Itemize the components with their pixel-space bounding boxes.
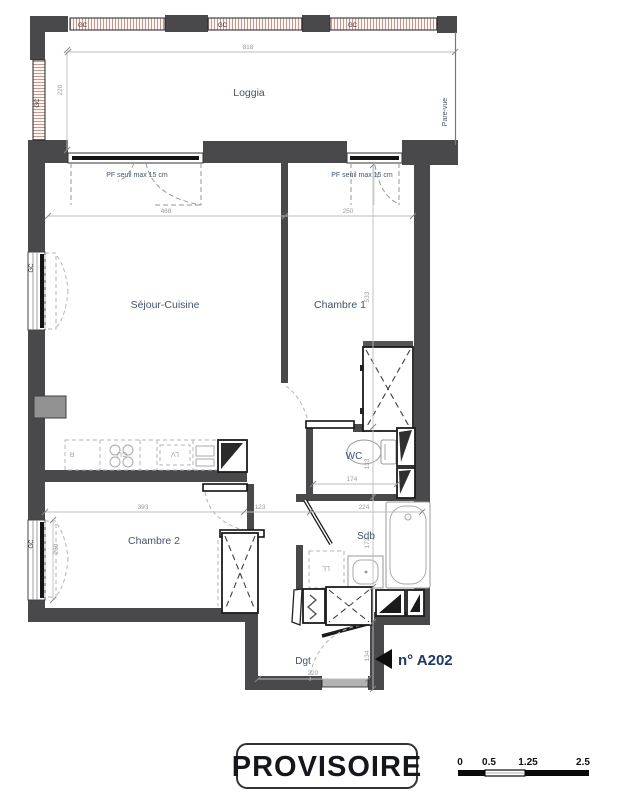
partition-sejour-chambre1 <box>281 163 288 383</box>
wardrobes <box>218 341 413 613</box>
gc-label: GC <box>348 23 358 29</box>
railing <box>330 18 437 30</box>
washer-label: LL <box>322 564 330 571</box>
dim-chambre2-width: 393 <box>138 504 149 511</box>
loggia-railings: GC GC GC GC Pare-vue <box>33 18 456 145</box>
gc-label: GC <box>218 23 228 29</box>
scale-label-25: 2.5 <box>576 757 590 768</box>
partition-hall <box>247 484 254 532</box>
scale-segment <box>525 770 589 776</box>
partition-wc-left <box>306 424 313 500</box>
partition-sejour-chambre2 <box>45 470 247 482</box>
wardrobe-hinge <box>360 365 364 371</box>
toilet-tank <box>381 440 396 464</box>
dim-loggia-depth: 220 <box>57 84 64 95</box>
wall-segment <box>402 140 458 165</box>
sink-bowl <box>196 446 214 456</box>
scale-label-0: 0 <box>457 757 463 768</box>
scale-label-05: 0.5 <box>482 757 496 768</box>
door-chambre1-leaf <box>306 421 354 428</box>
floorplan-drawing: GC GC GC GC Pare-vue PF seuil max 15 cm … <box>0 0 625 800</box>
wall-segment <box>437 16 457 33</box>
wall-segment <box>30 16 45 60</box>
door-sdb-leaf-inner <box>305 500 331 544</box>
wardrobe-chambre2 <box>222 533 258 613</box>
pf1-swing-arc <box>146 163 201 205</box>
dim-wc-height: 133 <box>364 458 371 469</box>
dim-chambre1-width: 250 <box>343 208 354 215</box>
window-chambre2-swing <box>45 521 56 597</box>
bathtub <box>386 502 430 588</box>
dim-dgt-height: 134 <box>364 650 371 661</box>
window-sejour-swing <box>45 253 56 329</box>
unit-marker: n° A202 <box>375 649 453 669</box>
wall-segment <box>258 676 322 690</box>
wall-segment <box>28 163 45 252</box>
gc-label: GC <box>29 539 35 549</box>
pf2-label: PF seuil max 15 cm <box>331 172 393 179</box>
wall-segment <box>203 141 347 163</box>
door-chambre1-arc <box>286 386 308 421</box>
loggia-label: Loggia <box>233 87 265 99</box>
dim-wc-width: 174 <box>347 476 358 483</box>
dim-sejour-width: 468 <box>161 208 172 215</box>
dim-window2-height: 260 <box>53 543 60 554</box>
door-sejour-arc <box>205 492 247 531</box>
window-chambre2-sash <box>40 522 44 598</box>
dim-sdb-width: 224 <box>359 504 370 511</box>
sdb-label: Sdb <box>357 531 375 542</box>
pf2-swing-arc <box>375 165 399 204</box>
window-pf2-glazing <box>350 156 399 160</box>
door-entry-arc <box>310 625 368 681</box>
wall-segment <box>28 140 68 163</box>
window-pf1-glazing <box>72 156 199 160</box>
provisoire-stamp: PROVISOIRE <box>232 744 423 788</box>
fridge-label: R <box>69 450 74 457</box>
sejour-label: Séjour-Cuisine <box>131 299 200 311</box>
partition-sdb-left <box>296 545 303 590</box>
pare-vue-label: Pare-vue <box>442 98 449 127</box>
hob-label: CU <box>117 450 127 457</box>
scale-bar: 0 0.5 1.25 2.5 <box>457 757 590 776</box>
window-sejour-arc <box>57 291 68 327</box>
gc-label: GC <box>78 23 88 29</box>
stamp-label: PROVISOIRE <box>232 751 423 783</box>
dishwasher-label: LV <box>171 450 179 457</box>
wall-segment <box>165 15 208 32</box>
hob-burner <box>123 457 133 467</box>
dim-dgt-width: 220 <box>308 670 319 677</box>
counter-outline <box>65 440 218 470</box>
washbasin-drain <box>365 571 368 574</box>
unit-number: n° A202 <box>398 652 453 669</box>
floorplan-page: GC GC GC GC Pare-vue PF seuil max 15 cm … <box>0 0 625 800</box>
door-sejour-leaf <box>203 484 247 491</box>
wardrobe-hinge <box>360 408 364 414</box>
dim-hall-width: 123 <box>255 504 266 511</box>
bathroom-fixtures: LL <box>309 428 430 588</box>
entry-door-slab <box>322 679 368 687</box>
dim-loggia-width: 818 <box>243 44 254 51</box>
wall-segment <box>245 622 258 690</box>
window-sejour-arc <box>57 256 68 291</box>
pf1-label: PF seuil max 15 cm <box>106 172 168 179</box>
wc-label: WC <box>346 451 363 462</box>
scale-label-125: 1.25 <box>518 757 538 768</box>
gc-label: GC <box>29 263 35 273</box>
hob-burner <box>110 457 120 467</box>
wall-segment <box>302 15 330 32</box>
water-heater <box>303 589 325 623</box>
cabinet-flap <box>292 589 302 625</box>
kitchen-counter: R CU LV <box>65 440 247 472</box>
scale-segment <box>458 770 485 776</box>
dgt-label: Dgt <box>295 656 311 667</box>
chambre1-label: Chambre 1 <box>314 299 366 311</box>
window-chambre2-arc <box>57 559 68 595</box>
sink-drainer <box>196 459 214 466</box>
window-sejour-sash <box>40 254 44 328</box>
wall-segment <box>370 620 384 680</box>
wall-segment <box>28 330 45 520</box>
gc-label: GC <box>35 98 41 108</box>
chambre2-label: Chambre 2 <box>128 535 180 547</box>
duct-block <box>34 396 66 418</box>
